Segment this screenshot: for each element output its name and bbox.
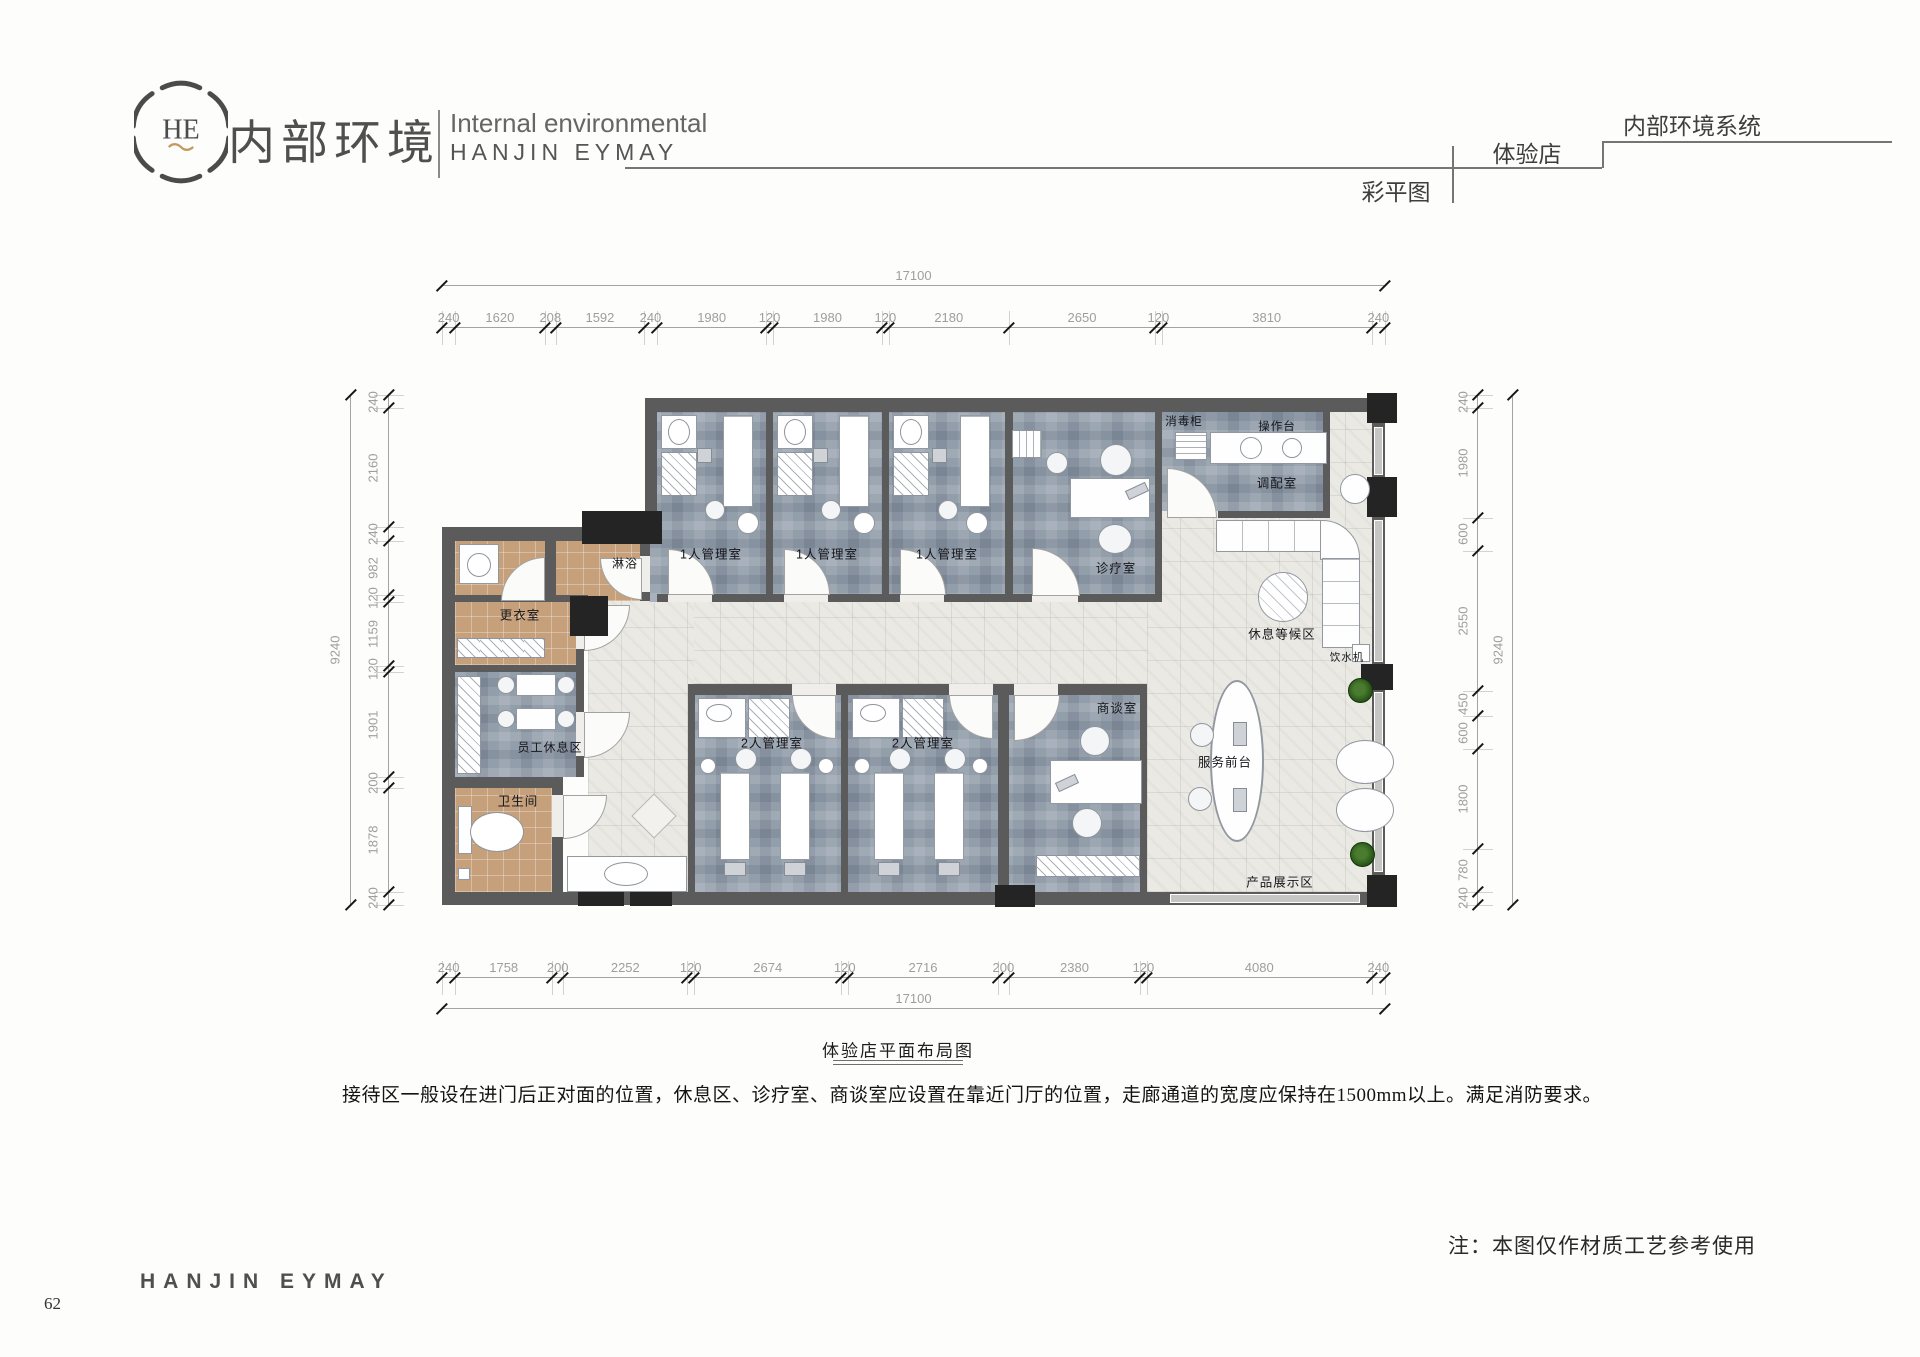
material-note: 注：本图仅作材质工艺参考使用 [1448, 1230, 1756, 1260]
sink [900, 419, 922, 445]
door-gap [668, 594, 712, 602]
counter-sink [1240, 437, 1262, 459]
round-table [1340, 474, 1370, 504]
washer-drum [467, 553, 491, 577]
treatment-bed [839, 415, 869, 507]
page-number: 62 [44, 1294, 61, 1314]
dim-label: 1878 [366, 825, 381, 854]
dim-label: 2252 [611, 960, 640, 975]
room-label-consult: 商谈室 [1097, 698, 1138, 717]
dim-label: 120 [680, 960, 702, 975]
plan-description: 接待区一般设在进门后正对面的位置，休息区、诊疗室、商谈室应设置在靠近门厅的位置，… [342, 1080, 1602, 1107]
room-label-staff-rest: 员工休息区 [517, 739, 582, 756]
dim-label: 1980 [697, 310, 726, 325]
column [582, 511, 662, 544]
treatment-bed [874, 772, 904, 860]
shower-stall [777, 452, 813, 496]
dim-label: 1901 [366, 710, 381, 739]
dim-label: 2650 [1068, 310, 1097, 325]
vanity-sink [604, 862, 648, 886]
tab-color-plan: 彩平图 [1362, 173, 1431, 207]
wall-dispensing-right [1323, 412, 1330, 518]
facial-machine [878, 862, 900, 876]
dim-total-bottom: 17100 [442, 1008, 1385, 1009]
facial-machine [697, 448, 712, 463]
facial-machine [813, 448, 828, 463]
dim-tick [1379, 1003, 1391, 1015]
dim-label: 2550 [1456, 607, 1471, 636]
dim-label: 1758 [489, 960, 518, 975]
header-rule-upper [1602, 141, 1892, 143]
door-gap [949, 684, 993, 695]
sink [784, 419, 806, 445]
room-label-waiting: 休息等候区 [1248, 624, 1316, 643]
dim-label: 2716 [909, 960, 938, 975]
basin [737, 512, 759, 534]
dim-chain-left: 2402160240982120115912019012001878240 [388, 395, 389, 905]
dim-label: 120 [1133, 960, 1155, 975]
room-label-operation: 操作台 [1258, 418, 1296, 434]
reception-chair [1188, 787, 1212, 811]
brand-divider [438, 110, 440, 178]
dim-label: 208 [539, 310, 561, 325]
dim-label: 450 [1456, 693, 1471, 715]
door-gap [792, 684, 836, 695]
basin [854, 758, 870, 774]
wall-div-mgmt2b-consult [998, 684, 1009, 892]
dim-label: 3810 [1252, 310, 1281, 325]
stool [938, 500, 958, 520]
brand-name-en2: HANJIN EYMAY [450, 139, 678, 166]
dim-label: 982 [366, 557, 381, 579]
header-rule-step [1602, 141, 1604, 168]
dim-label: 2180 [934, 310, 963, 325]
header-rule-tick [1452, 146, 1454, 203]
dim-tick [345, 389, 357, 401]
dim-label: 240 [1368, 960, 1390, 975]
dim-chain-right: 240198060025504506001800780240 [1477, 395, 1478, 905]
room-label-treatment: 诊疗室 [1096, 558, 1137, 577]
wall-left-h3 [455, 777, 563, 788]
dim-total-right: 9240 [1512, 395, 1513, 905]
sink [668, 419, 690, 445]
dim-label: 240 [438, 310, 460, 325]
dim-label: 17100 [895, 991, 931, 1006]
room-label-mgmt1: 1人管理室 [796, 544, 858, 563]
dim-label: 1620 [485, 310, 514, 325]
basin [818, 758, 834, 774]
locker-cabinets [457, 676, 481, 774]
dim-tick [345, 899, 357, 911]
treatment-bed [934, 772, 964, 860]
footer-brand: HANJIN EYMAY [140, 1270, 393, 1294]
dim-chain-bottom: 2401758200225212026741202716200238012040… [442, 977, 1385, 978]
door-gap [552, 795, 563, 837]
plant [1350, 842, 1375, 867]
dim-label: 1592 [585, 310, 614, 325]
dim-label: 600 [1456, 722, 1471, 744]
room-label-disinfect: 消毒柜 [1165, 413, 1203, 429]
tab-experience-store: 体验店 [1493, 135, 1562, 169]
display-unit [1336, 788, 1394, 832]
facial-machine [938, 862, 960, 876]
dim-label: 120 [1147, 310, 1169, 325]
chair [1080, 726, 1110, 756]
brand-name-cn: 内部环境 [228, 104, 440, 173]
basin [853, 512, 875, 534]
dim-label: 2380 [1060, 960, 1089, 975]
staff-table [516, 708, 556, 730]
room-label-display: 产品展示区 [1246, 872, 1314, 891]
wall-left [442, 527, 455, 905]
stool [705, 500, 725, 520]
shower-stall [661, 452, 697, 496]
dim-label: 240 [640, 310, 662, 325]
wall-dispensing-bottom [1218, 511, 1330, 518]
shower-stall [893, 452, 929, 496]
dim-total-left: 9240 [350, 395, 351, 905]
facial-machine [932, 448, 947, 463]
wall-treatment-dispensing [1155, 412, 1162, 602]
dim-label: 240 [1456, 888, 1471, 910]
staff-chair [497, 710, 515, 728]
guest-chair [1098, 524, 1132, 554]
room-label-reception: 服务前台 [1198, 752, 1252, 771]
facial-machine [784, 862, 806, 876]
treatment-bed [780, 772, 810, 860]
floor-drain [458, 868, 470, 880]
header-rule [625, 167, 1602, 169]
dim-label: 120 [366, 587, 381, 609]
reception-terminal [1233, 788, 1247, 812]
plant [1348, 678, 1373, 703]
treatment-bed [723, 415, 753, 507]
room-label-shower: 淋浴 [612, 555, 638, 572]
door-gap [1014, 684, 1058, 695]
dim-label: 780 [1456, 859, 1471, 881]
dim-label: 240 [1368, 310, 1390, 325]
dim-label: 240 [438, 960, 460, 975]
basin [700, 758, 716, 774]
dim-label: 200 [993, 960, 1015, 975]
reception-chair [1190, 723, 1214, 747]
room-label-water: 饮水机 [1330, 650, 1365, 665]
dim-label: 200 [547, 960, 569, 975]
wall-div-room2-3 [882, 412, 889, 594]
dim-tick [1379, 280, 1391, 292]
dim-chain-top: 2401620208159224019801201980120218026501… [442, 327, 1385, 328]
disinfect-cabinet-unit [1175, 432, 1207, 460]
dim-label: 9240 [1491, 636, 1506, 665]
dim-label: 120 [834, 960, 856, 975]
dim-label: 2674 [753, 960, 782, 975]
column [995, 885, 1035, 907]
staff-chair [557, 676, 575, 694]
dim-label: 120 [366, 658, 381, 680]
sofa-horizontal [1216, 520, 1322, 552]
counter-sink [1282, 438, 1302, 458]
dim-tick [436, 1003, 448, 1015]
dim-label: 240 [366, 888, 381, 910]
cabinet [1012, 430, 1042, 458]
column [1367, 477, 1397, 517]
sink [706, 704, 732, 722]
column [1367, 393, 1397, 423]
wall-corridor-right [688, 684, 695, 892]
room-label-mgmt1: 1人管理室 [916, 544, 978, 563]
room-label-mgmt2: 2人管理室 [741, 733, 803, 752]
treatment-bed [960, 415, 990, 507]
brand-monogram: HE [162, 115, 200, 146]
window-bottom [1170, 894, 1360, 903]
door-gap [900, 594, 944, 602]
window-right-2 [1374, 520, 1383, 662]
dim-total-top: 17100 [442, 285, 1385, 286]
facial-machine [724, 862, 746, 876]
wall-div-room1-2 [766, 412, 773, 594]
treatment-bed [720, 772, 750, 860]
dim-label: 240 [1456, 391, 1471, 413]
album-page: HE 内部环境 Internal environmental HANJIN EY… [0, 0, 1920, 1357]
plan-caption: 体验店平面布局图 [822, 1037, 974, 1062]
staff-table [516, 674, 556, 696]
sink [860, 704, 886, 722]
dim-label: 120 [875, 310, 897, 325]
wall-left-h2 [455, 665, 584, 672]
dim-label: 240 [366, 391, 381, 413]
staff-chair [497, 676, 515, 694]
towel-chair [1100, 444, 1132, 476]
wall-div-mgmt2a-b [841, 684, 848, 892]
dim-label: 120 [759, 310, 781, 325]
window-right-1 [1374, 427, 1383, 475]
basin [966, 512, 988, 534]
dim-label: 2160 [366, 453, 381, 482]
dim-label: 9240 [328, 636, 343, 665]
room-label-toilet: 卫生间 [498, 791, 539, 810]
dim-tick [1507, 389, 1519, 401]
tab-internal-env-system: 内部环境系统 [1623, 107, 1761, 141]
column [570, 596, 608, 636]
brand-name-en: Internal environmental [450, 108, 707, 139]
storage-cabinets [1036, 855, 1140, 877]
dim-tick [436, 280, 448, 292]
column [1367, 875, 1397, 907]
brand-logo-wreath-icon: HE [134, 76, 228, 188]
dim-label: 1980 [813, 310, 842, 325]
dim-label: 17100 [895, 268, 931, 283]
room-label-mgmt1: 1人管理室 [680, 544, 742, 563]
round-rug [1258, 572, 1308, 622]
stool [821, 500, 841, 520]
room-label-dispensing: 调配室 [1257, 473, 1298, 492]
wardrobe-cabinets [457, 638, 545, 658]
dim-label: 200 [366, 772, 381, 794]
room-label-changing: 更衣室 [500, 605, 541, 624]
wall-shower-divider [545, 541, 556, 601]
dim-label: 4080 [1245, 960, 1274, 975]
operation-counter-unit [1210, 432, 1327, 464]
dim-label: 600 [1456, 523, 1471, 545]
toilet-bowl [470, 812, 524, 852]
wall-bottomrooms-top [688, 684, 1147, 695]
wall-top [645, 398, 1385, 412]
door-gap [784, 594, 828, 602]
reception-terminal [1233, 722, 1247, 746]
staff-chair [557, 710, 575, 728]
dim-tick [1507, 899, 1519, 911]
chair [1046, 452, 1068, 474]
dim-label: 1800 [1456, 785, 1471, 814]
display-unit [1336, 740, 1394, 784]
dim-label: 1980 [1456, 448, 1471, 477]
room-label-mgmt2: 2人管理室 [892, 733, 954, 752]
dim-label: 240 [366, 523, 381, 545]
chair [1072, 808, 1102, 838]
basin [972, 758, 988, 774]
sofa-vertical [1322, 558, 1360, 648]
dim-label: 1159 [366, 620, 381, 648]
